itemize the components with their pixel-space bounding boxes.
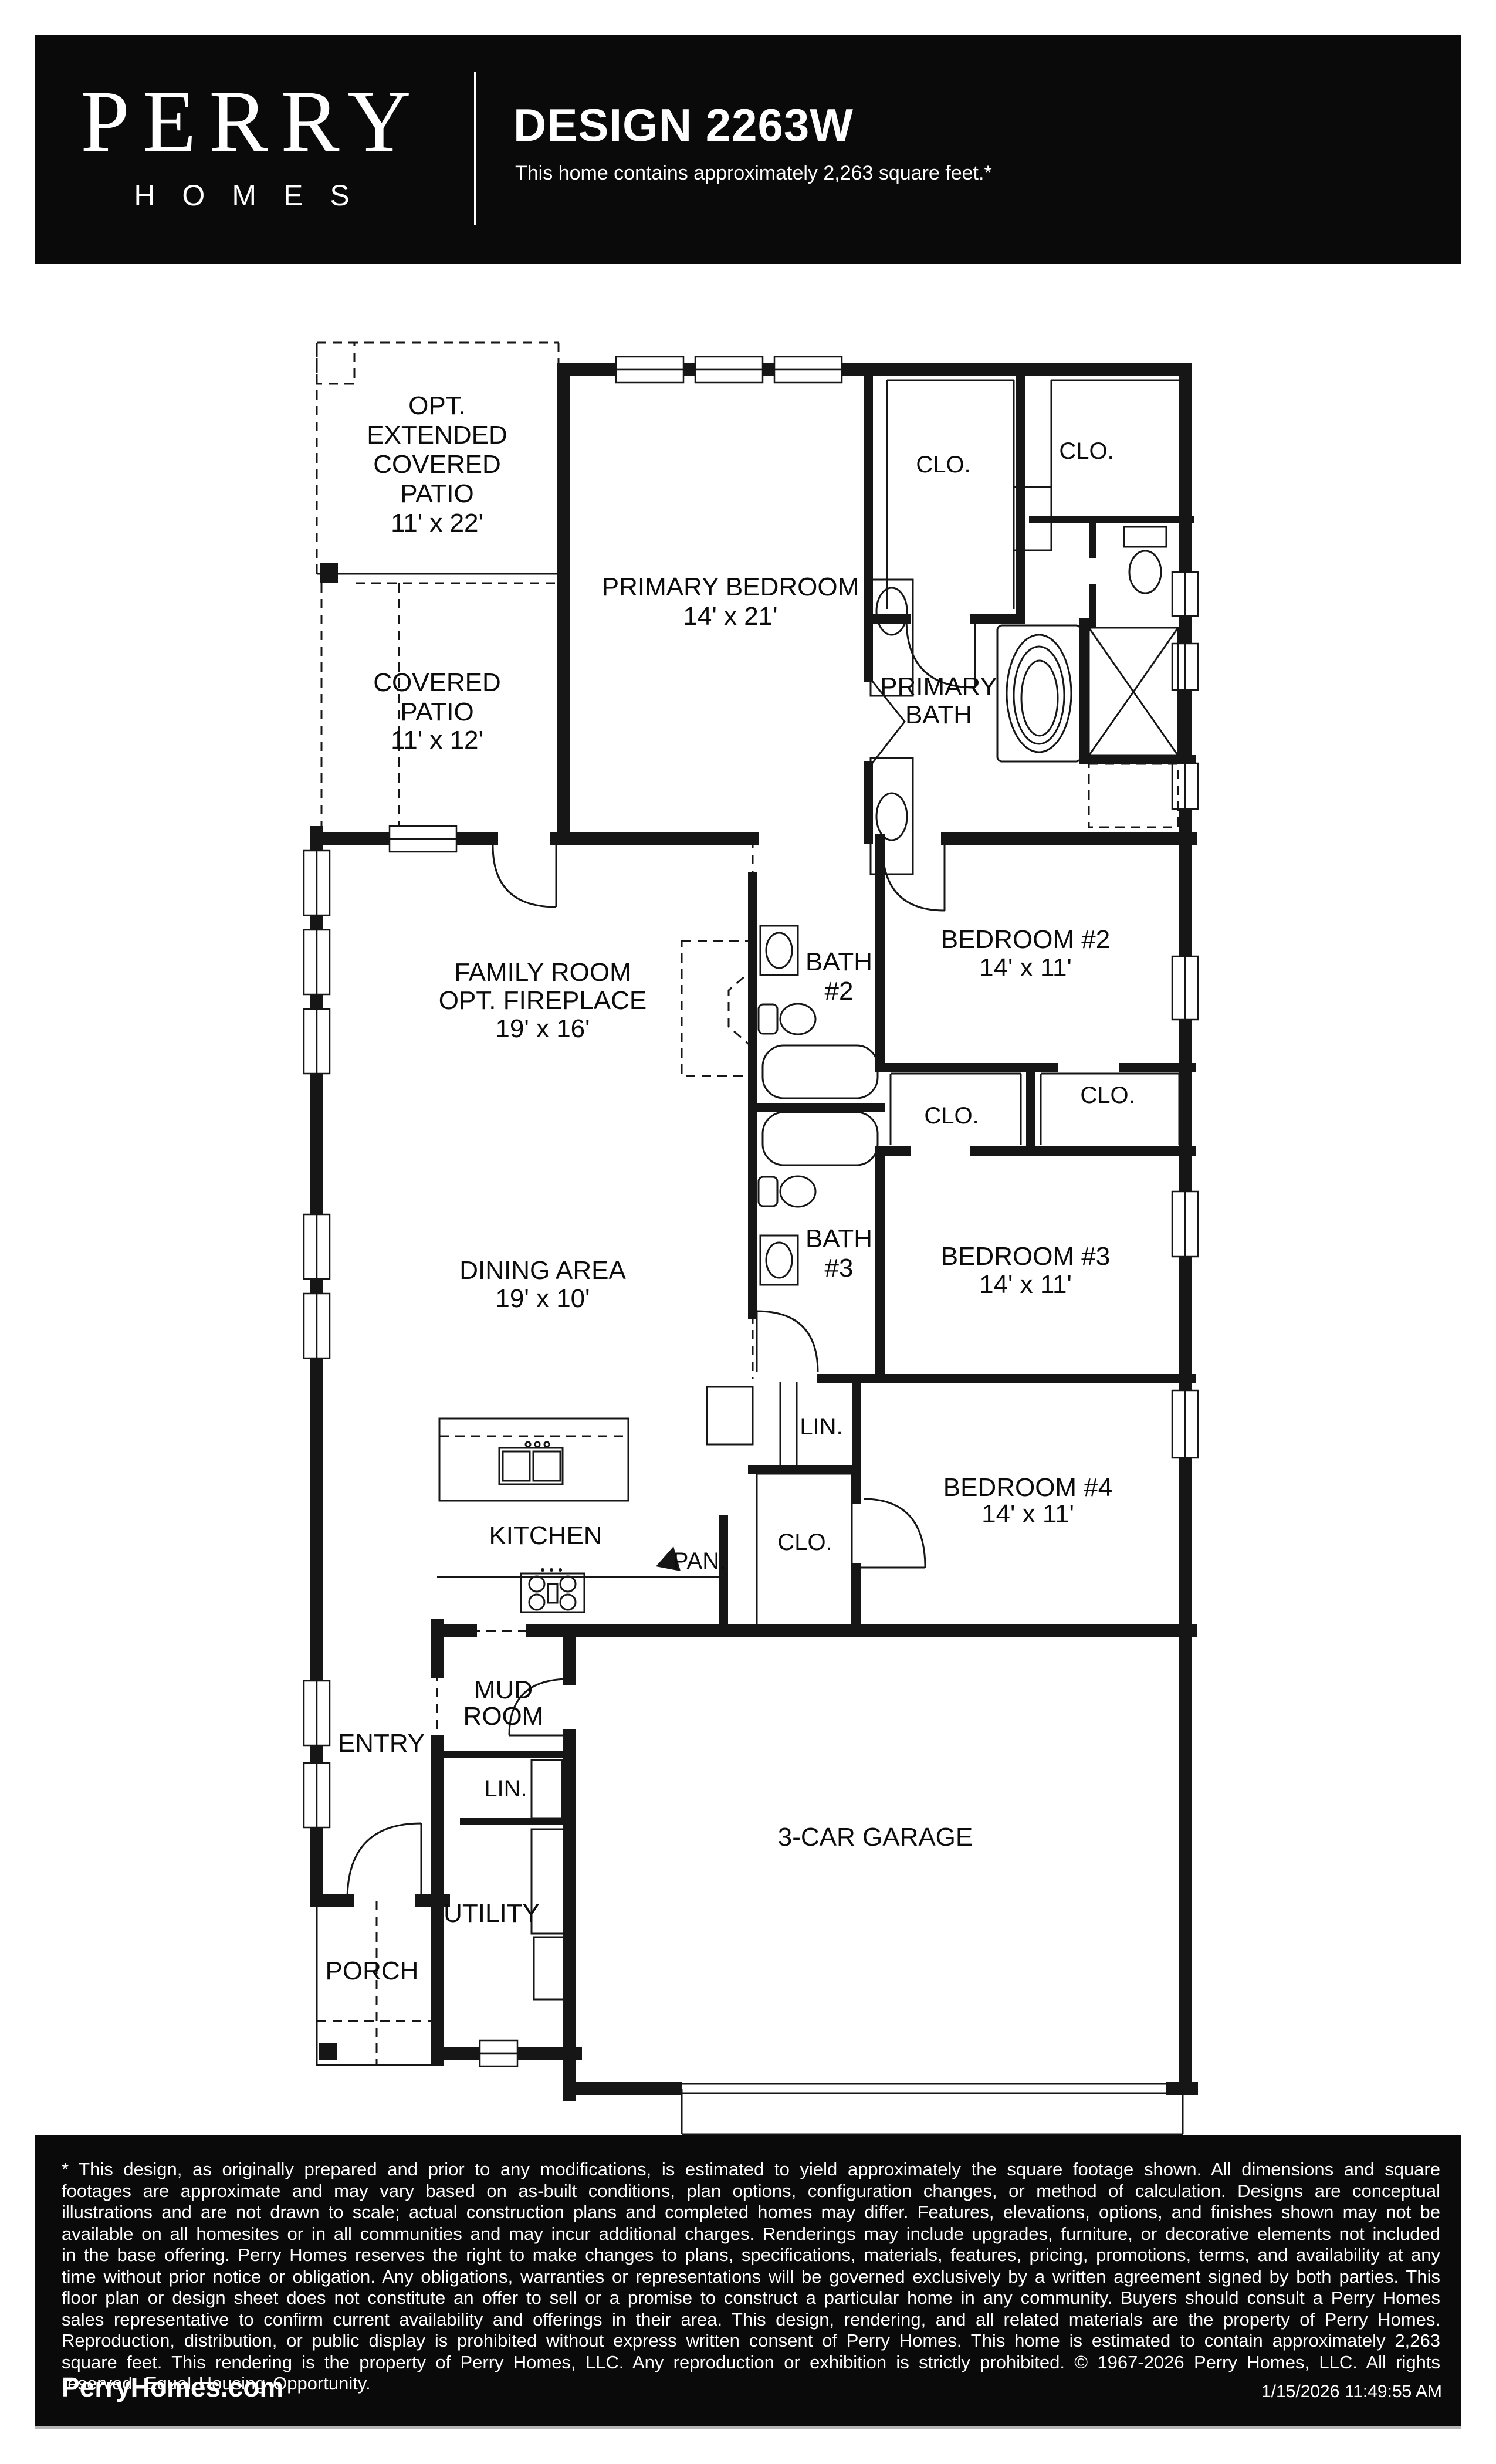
design-sheet-page: PERRY HOMES DESIGN 2263W This home conta… xyxy=(0,0,1496,2464)
label-family-room-1: FAMILY ROOM xyxy=(454,958,631,987)
label-opt-patio-dims: 11' x 22' xyxy=(391,509,483,537)
room-labels: OPT. EXTENDED COVERED PATIO 11' x 22' CO… xyxy=(326,391,1135,1985)
label-primary-closet-1: CLO. xyxy=(916,452,970,478)
label-lin-hall: LIN. xyxy=(800,1414,842,1440)
label-bath3-1: BATH xyxy=(805,1224,872,1253)
label-bath2-1: BATH xyxy=(805,947,872,976)
label-bath2-2: #2 xyxy=(825,977,854,1006)
label-primary-bath-1: PRIMARY xyxy=(880,672,997,701)
label-garage: 3-CAR GARAGE xyxy=(778,1823,973,1852)
utility-fixtures xyxy=(532,1760,566,1999)
primary-closet-shelving xyxy=(887,380,1180,609)
website-link[interactable]: PerryHomes.com xyxy=(62,2371,283,2403)
stove-icon xyxy=(521,1568,584,1612)
label-primary-bedroom-dims: 14' x 21' xyxy=(683,602,777,631)
kitchen-fixtures xyxy=(437,1419,723,1612)
legal-disclaimer: * This design, as originally prepared an… xyxy=(62,2159,1440,2395)
label-family-room-dims: 19' x 16' xyxy=(495,1014,590,1043)
porch-column xyxy=(319,2043,337,2060)
label-kitchen: KITCHEN xyxy=(489,1521,602,1550)
label-entry: ENTRY xyxy=(338,1729,425,1758)
label-bedroom3: BEDROOM #3 xyxy=(941,1242,1111,1271)
label-covered-patio-2: PATIO xyxy=(400,698,474,726)
label-bedroom4-dims: 14' x 11' xyxy=(981,1500,1074,1528)
label-bedroom4: BEDROOM #4 xyxy=(943,1473,1113,1502)
bath3-fixtures xyxy=(759,1112,878,1285)
primary-toilet-icon xyxy=(1124,527,1166,593)
label-primary-bedroom: PRIMARY BEDROOM xyxy=(602,573,859,601)
label-bedroom2: BEDROOM #2 xyxy=(941,925,1111,954)
shower-icon xyxy=(1089,628,1178,827)
label-mud-room-1: MUD xyxy=(474,1676,533,1704)
label-opt-patio-2: EXTENDED xyxy=(367,421,507,449)
patio-column xyxy=(320,563,338,583)
label-opt-patio-4: PATIO xyxy=(400,479,474,508)
label-covered-patio-1: COVERED xyxy=(373,668,501,697)
label-primary-bath-2: BATH xyxy=(905,700,972,729)
label-primary-closet-2: CLO. xyxy=(1059,438,1113,464)
label-utility: UTILITY xyxy=(444,1899,540,1928)
label-pantry: PAN. xyxy=(673,1548,726,1574)
label-bath3-2: #3 xyxy=(825,1254,854,1282)
footer-bar: * This design, as originally prepared an… xyxy=(35,2135,1461,2429)
label-porch: PORCH xyxy=(326,1957,419,1985)
label-covered-patio-dims: 11' x 12' xyxy=(391,726,483,754)
label-family-room-2: OPT. FIREPLACE xyxy=(439,986,647,1015)
dryer-icon xyxy=(534,1937,566,1999)
label-opt-patio-1: OPT. xyxy=(408,391,466,420)
label-bedroom2-dims: 14' x 11' xyxy=(979,953,1072,982)
garage-door xyxy=(682,2077,1183,2134)
label-clo-bed2: CLO. xyxy=(1080,1082,1135,1108)
island-sink-icon xyxy=(499,1448,563,1484)
label-mud-room-2: ROOM xyxy=(463,1702,544,1731)
optional-fireplace-icon xyxy=(682,941,756,1076)
label-opt-patio-3: COVERED xyxy=(373,450,501,479)
label-dining-dims: 19' x 10' xyxy=(495,1284,590,1313)
print-timestamp: 1/15/2026 11:49:55 AM xyxy=(1261,2382,1442,2402)
label-lin-utility: LIN. xyxy=(484,1776,527,1802)
floor-plan-drawing: OPT. EXTENDED COVERED PATIO 11' x 22' CO… xyxy=(0,0,1496,2464)
label-dining: DINING AREA xyxy=(459,1256,626,1285)
label-clo-bed3: CLO. xyxy=(924,1103,979,1129)
tub-icon xyxy=(997,625,1081,761)
label-clo-bed4: CLO. xyxy=(777,1529,832,1555)
label-bedroom3-dims: 14' x 11' xyxy=(979,1270,1072,1299)
